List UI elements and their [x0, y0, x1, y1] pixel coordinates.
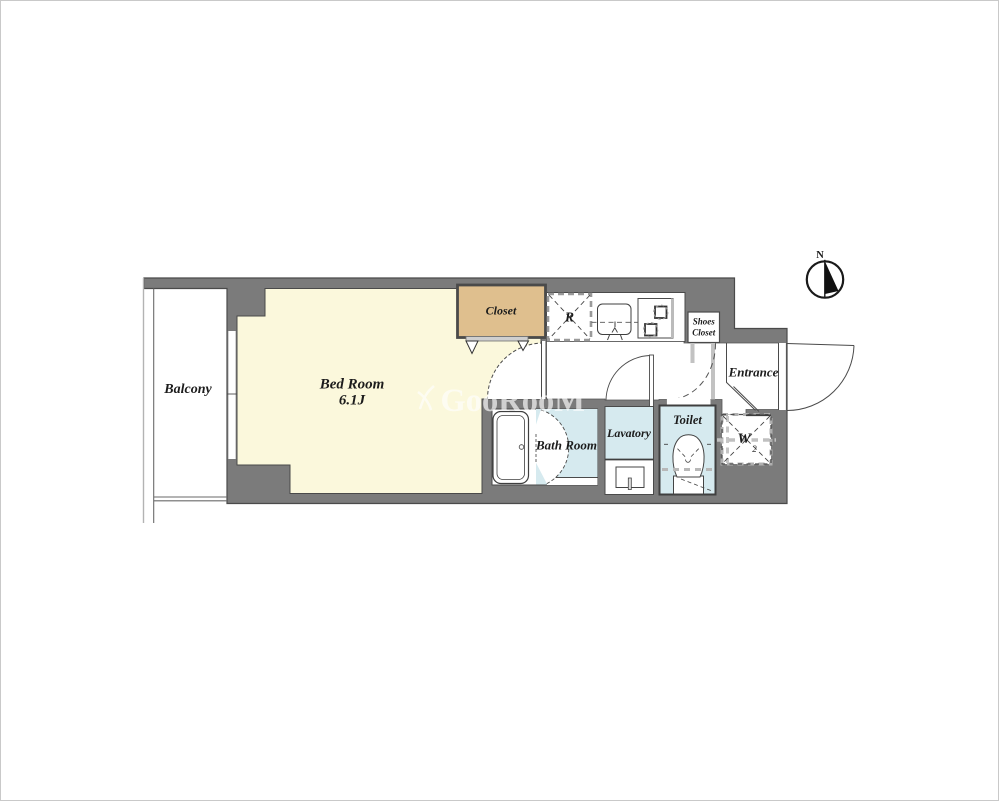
svg-text:2: 2	[752, 444, 757, 454]
svg-text:Closet: Closet	[486, 304, 517, 318]
svg-text:GooRooM: GooRooM	[441, 383, 585, 419]
svg-text:R: R	[564, 310, 574, 325]
svg-text:6.1J: 6.1J	[339, 393, 366, 409]
svg-text:Entrance: Entrance	[728, 365, 779, 380]
svg-text:Shoes: Shoes	[693, 317, 716, 327]
svg-text:Lavatory: Lavatory	[606, 426, 652, 440]
svg-text:N: N	[816, 250, 824, 261]
svg-text:Closet: Closet	[692, 328, 716, 338]
svg-text:Bed Room: Bed Room	[319, 377, 385, 393]
svg-text:Balcony: Balcony	[163, 382, 212, 397]
svg-text:Toilet: Toilet	[673, 413, 702, 427]
svg-text:Bath Room: Bath Room	[535, 438, 597, 453]
svg-text:W: W	[737, 431, 752, 447]
